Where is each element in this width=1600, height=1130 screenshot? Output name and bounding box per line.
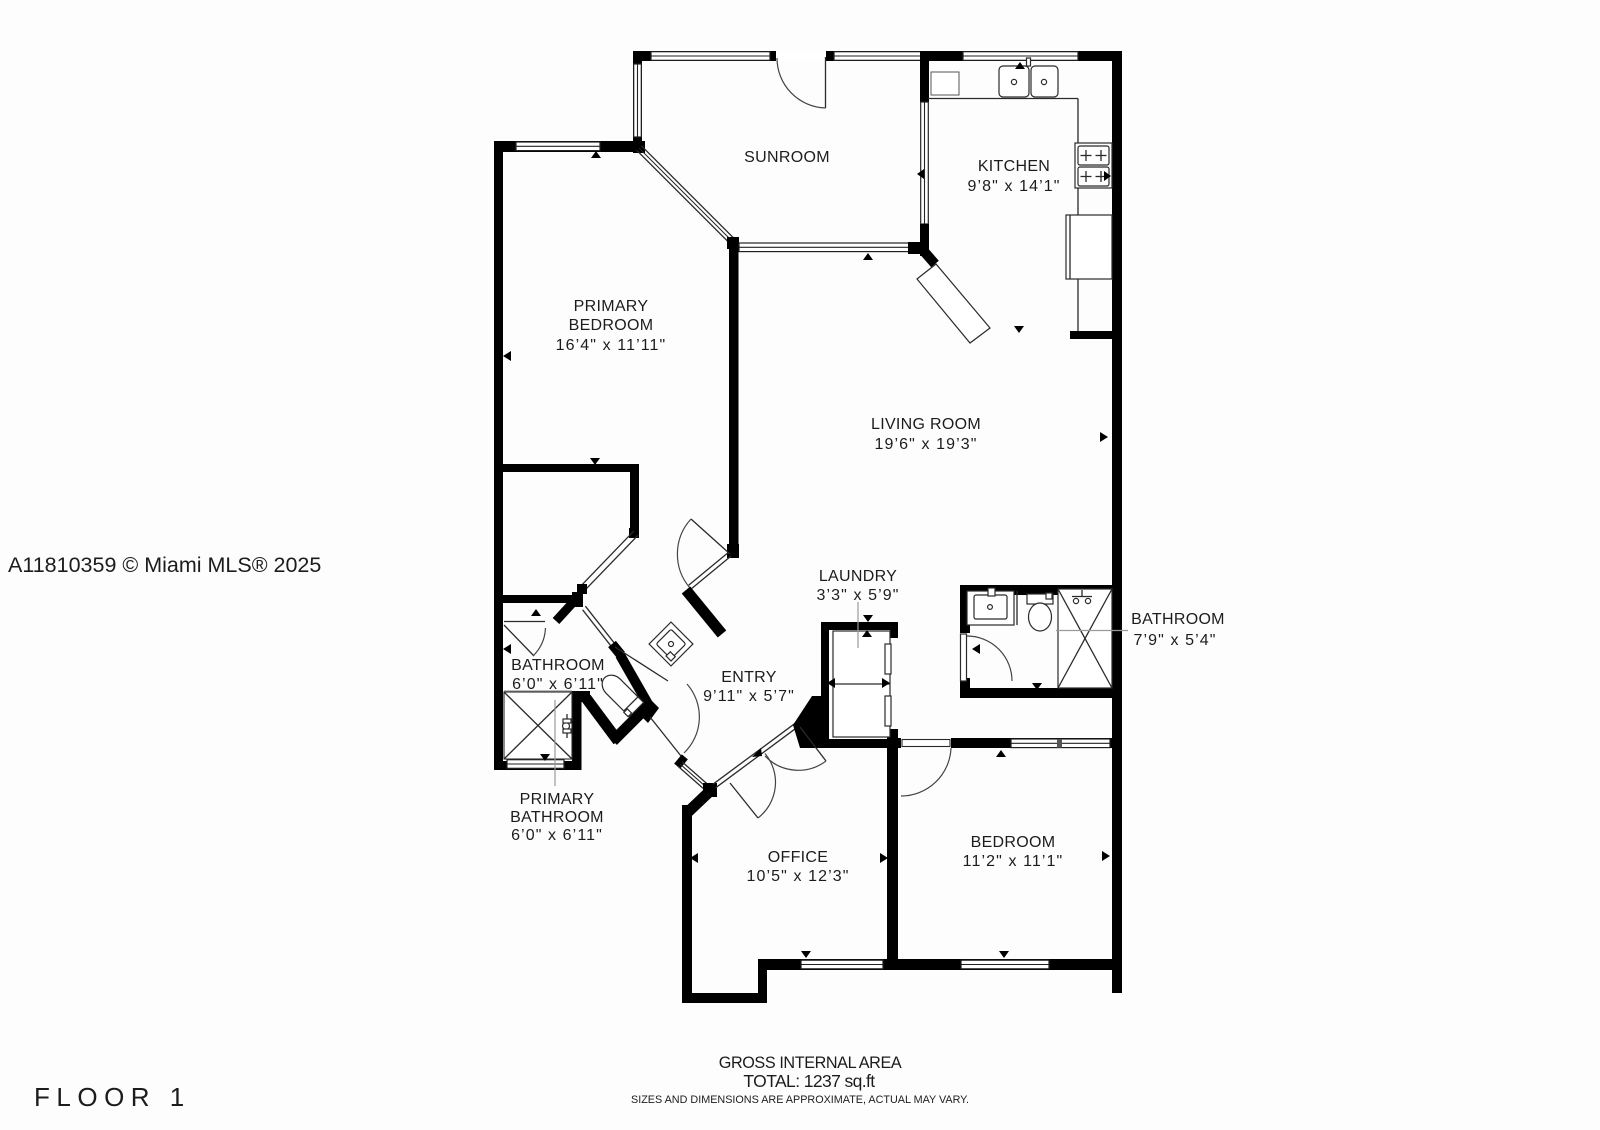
svg-text:BATHROOM: BATHROOM bbox=[511, 657, 605, 674]
svg-text:3’3" x 5’9": 3’3" x 5’9" bbox=[816, 587, 899, 604]
svg-text:SIZES AND DIMENSIONS ARE APPRO: SIZES AND DIMENSIONS ARE APPROXIMATE, AC… bbox=[631, 1094, 969, 1106]
svg-text:BATHROOM: BATHROOM bbox=[510, 809, 604, 826]
svg-text:9’11" x 5’7": 9’11" x 5’7" bbox=[703, 688, 795, 705]
svg-text:LIVING ROOM: LIVING ROOM bbox=[871, 416, 981, 433]
svg-text:KITCHEN: KITCHEN bbox=[978, 158, 1050, 175]
svg-text:BATHROOM: BATHROOM bbox=[1131, 611, 1225, 628]
svg-text:PRIMARY: PRIMARY bbox=[520, 791, 595, 808]
svg-text:6’0" x 6’11": 6’0" x 6’11" bbox=[512, 676, 604, 693]
svg-text:OFFICE: OFFICE bbox=[768, 849, 828, 866]
svg-text:6’0" x 6’11": 6’0" x 6’11" bbox=[511, 827, 603, 844]
svg-text:19’6" x 19’3": 19’6" x 19’3" bbox=[874, 436, 977, 453]
svg-text:10’5" x 12’3": 10’5" x 12’3" bbox=[746, 868, 849, 885]
svg-text:A11810359 © Miami MLS® 2025: A11810359 © Miami MLS® 2025 bbox=[8, 553, 321, 577]
svg-text:BEDROOM: BEDROOM bbox=[971, 834, 1056, 851]
svg-text:16’4" x 11’11": 16’4" x 11’11" bbox=[556, 337, 667, 354]
svg-text:BEDROOM: BEDROOM bbox=[569, 317, 654, 334]
svg-text:7’9" x 5’4": 7’9" x 5’4" bbox=[1133, 632, 1216, 649]
svg-text:PRIMARY: PRIMARY bbox=[574, 298, 649, 315]
svg-text:9’8" x 14’1": 9’8" x 14’1" bbox=[967, 178, 1060, 195]
svg-text:LAUNDRY: LAUNDRY bbox=[819, 568, 897, 585]
svg-text:GROSS INTERNAL AREA: GROSS INTERNAL AREA bbox=[719, 1054, 902, 1072]
svg-text:SUNROOM: SUNROOM bbox=[744, 149, 830, 166]
svg-text:FLOOR 1: FLOOR 1 bbox=[34, 1082, 191, 1112]
svg-text:TOTAL: 1237 sq.ft: TOTAL: 1237 sq.ft bbox=[743, 1071, 875, 1091]
svg-text:ENTRY: ENTRY bbox=[721, 669, 776, 686]
svg-text:11’2" x 11’1": 11’2" x 11’1" bbox=[963, 853, 1064, 870]
